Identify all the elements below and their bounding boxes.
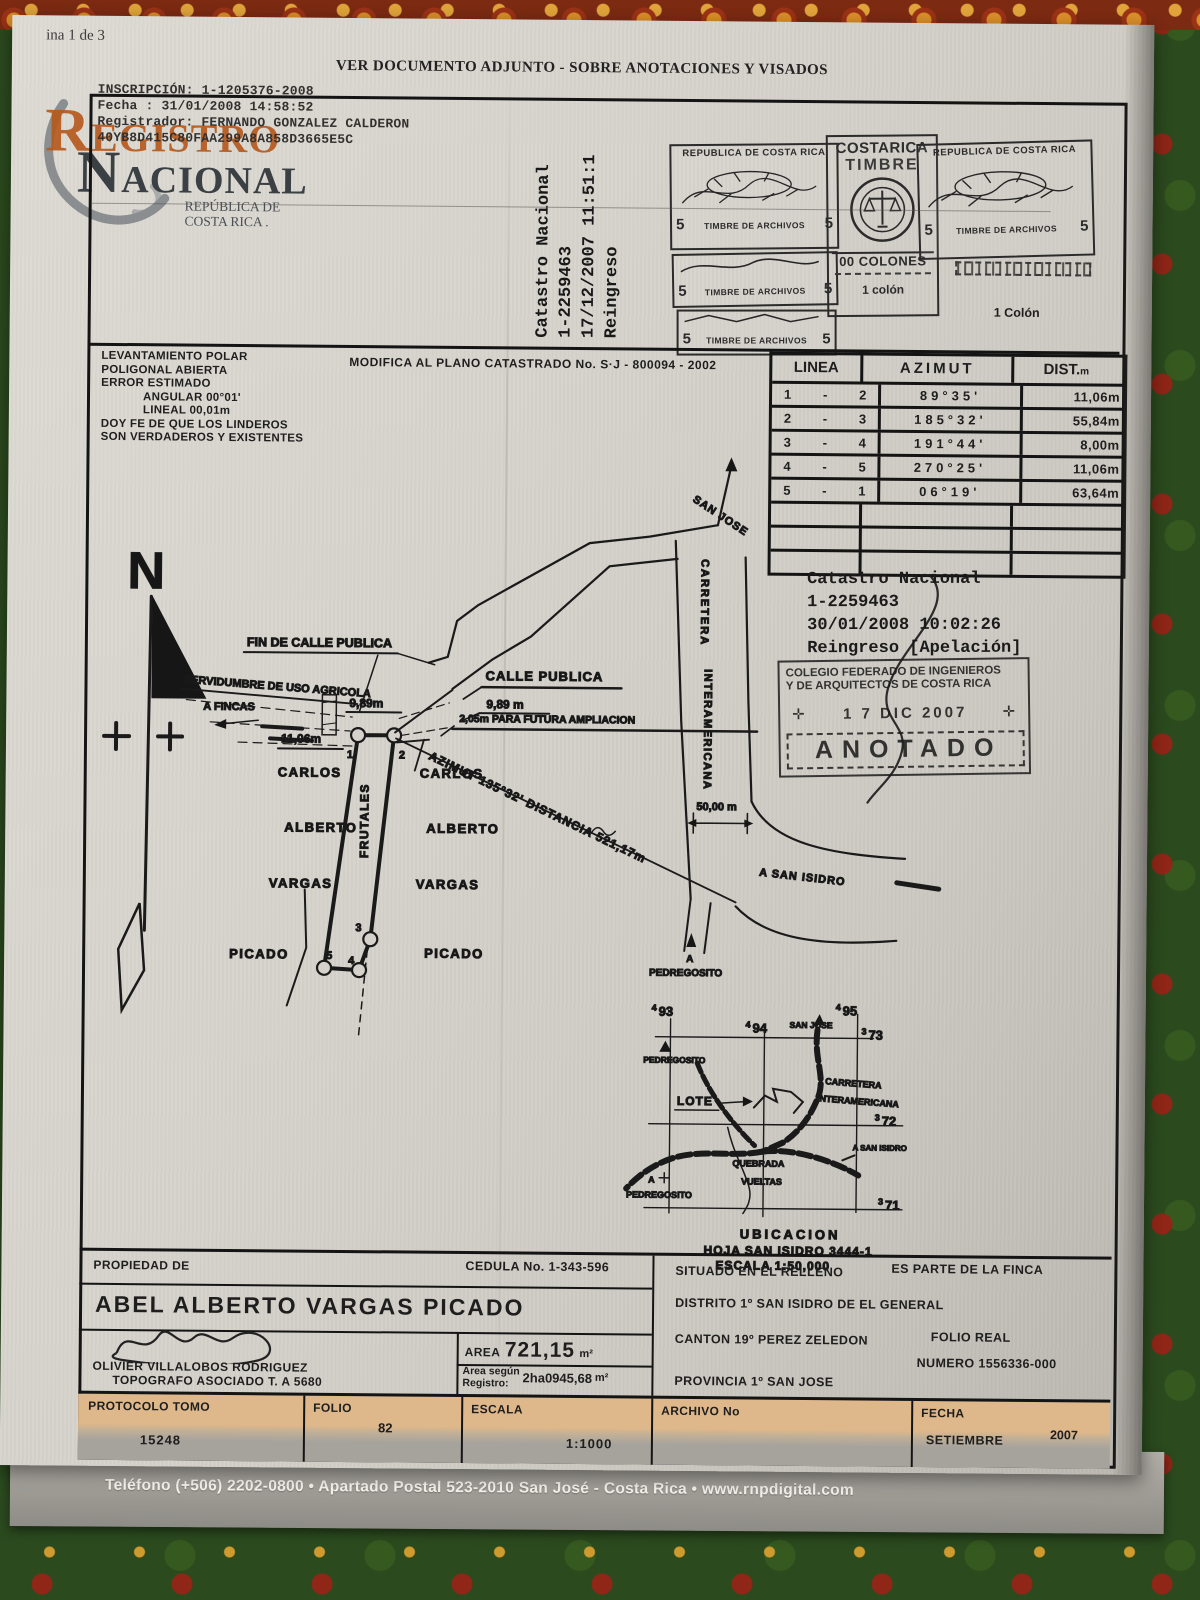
fecha-month: SETIEMBRE [926,1433,1004,1448]
bearings-table: LINEA AZIMUT DIST.m 1-2 89°35' 11,06m 2-… [767,352,1127,579]
cross-icon: ✛ [792,705,808,723]
situado-value: SITUADO EN EL RELLENO [675,1264,843,1279]
folio-label: FOLIO [313,1401,352,1415]
col-linea: LINEA [772,355,863,382]
canton-value: CANTON 19º PEREZ ZELEDON [675,1332,868,1348]
col-azimut: AZIMUT [863,355,1014,382]
fecha-year: 2007 [1050,1428,1078,1442]
folio-value: 82 [378,1420,393,1435]
property-info-table: PROPIEDAD DE CEDULA No. 1-343-596 ABEL A… [78,1248,1112,1466]
cfia-anotado-stamp: COLEGIO FEDERADO DE INGENIEROS Y DE ARQU… [777,657,1031,778]
anotado-date-row: ✛ 1 7 DIC 2007 ✛ [786,702,1024,723]
surveyor-signature [99,1317,399,1366]
folio-real-number: NUMERO 1556336-000 [917,1356,1057,1371]
table-row: 4-5 270°25' 11,06m [771,456,1123,483]
cedula-value: CEDULA No. 1-343-596 [465,1259,609,1274]
protocolo-value: 15248 [140,1432,181,1447]
table-row: 1-2 89°35' 11,06m [772,384,1124,411]
fecha-label: FECHA [921,1406,964,1420]
escala-label: ESCALA [471,1402,523,1416]
cross-icon: ✛ [1002,702,1018,720]
distrito-value: DISTRITO 1º SAN ISIDRO DE EL GENERAL [675,1296,944,1312]
folio-real-label: FOLIO REAL [931,1330,1011,1345]
document-header-title: VER DOCUMENTO ADJUNTO - SOBRE ANOTACIONE… [262,57,902,80]
table-row: 2-3 185°32' 55,84m [772,408,1124,435]
table-empty-row [771,504,1123,531]
col-dist: DIST.m [1014,357,1118,384]
plano-catastrado-sheet: ina 1 de 3 VER DOCUMENTO ADJUNTO - SOBRE… [0,15,1154,1475]
area-registro-row: Area según Registro: 2ha0945,68 m² [462,1366,648,1391]
es-parte-label: ES PARTE DE LA FINCA [891,1262,1043,1277]
table-header-row: LINEA AZIMUT DIST.m [772,355,1124,387]
page-indicator: ina 1 de 3 [46,27,105,45]
survey-notes: LEVANTAMIENTO POLAR POLIGONAL ABIERTA ER… [101,350,304,446]
bottom-strip: PROTOCOLO TOMO 15248 FOLIO 82 ESCALA 1:1… [78,1391,1111,1469]
table-row: 5-1 06°19' 63,64m [771,480,1123,507]
provincia-value: PROVINCIA 1º SAN JOSE [674,1374,833,1389]
surveyor-title: TOPOGRAFO ASOCIADO T. A 5680 [112,1373,322,1389]
rnp-footer: Teléfono (+506) 2202-0800 • Apartado Pos… [105,1477,854,1500]
catastro-apelacion-stamp: Catastro Nacional 1-2259463 30/01/2008 1… [807,568,1021,660]
area-value-row: AREA 721,15 m² [465,1338,593,1363]
table-empty-row [771,528,1123,555]
table-row: 3-4 191°44' 8,00m [772,432,1124,459]
protocolo-label: PROTOCOLO TOMO [88,1399,210,1414]
photo-of-survey-document: Teléfono (+506) 2202-0800 • Apartado Pos… [0,0,1200,1600]
propiedad-de-label: PROPIEDAD DE [93,1258,189,1273]
escala-value: 1:1000 [566,1436,613,1451]
archivo-label: ARCHIVO No [661,1404,740,1419]
